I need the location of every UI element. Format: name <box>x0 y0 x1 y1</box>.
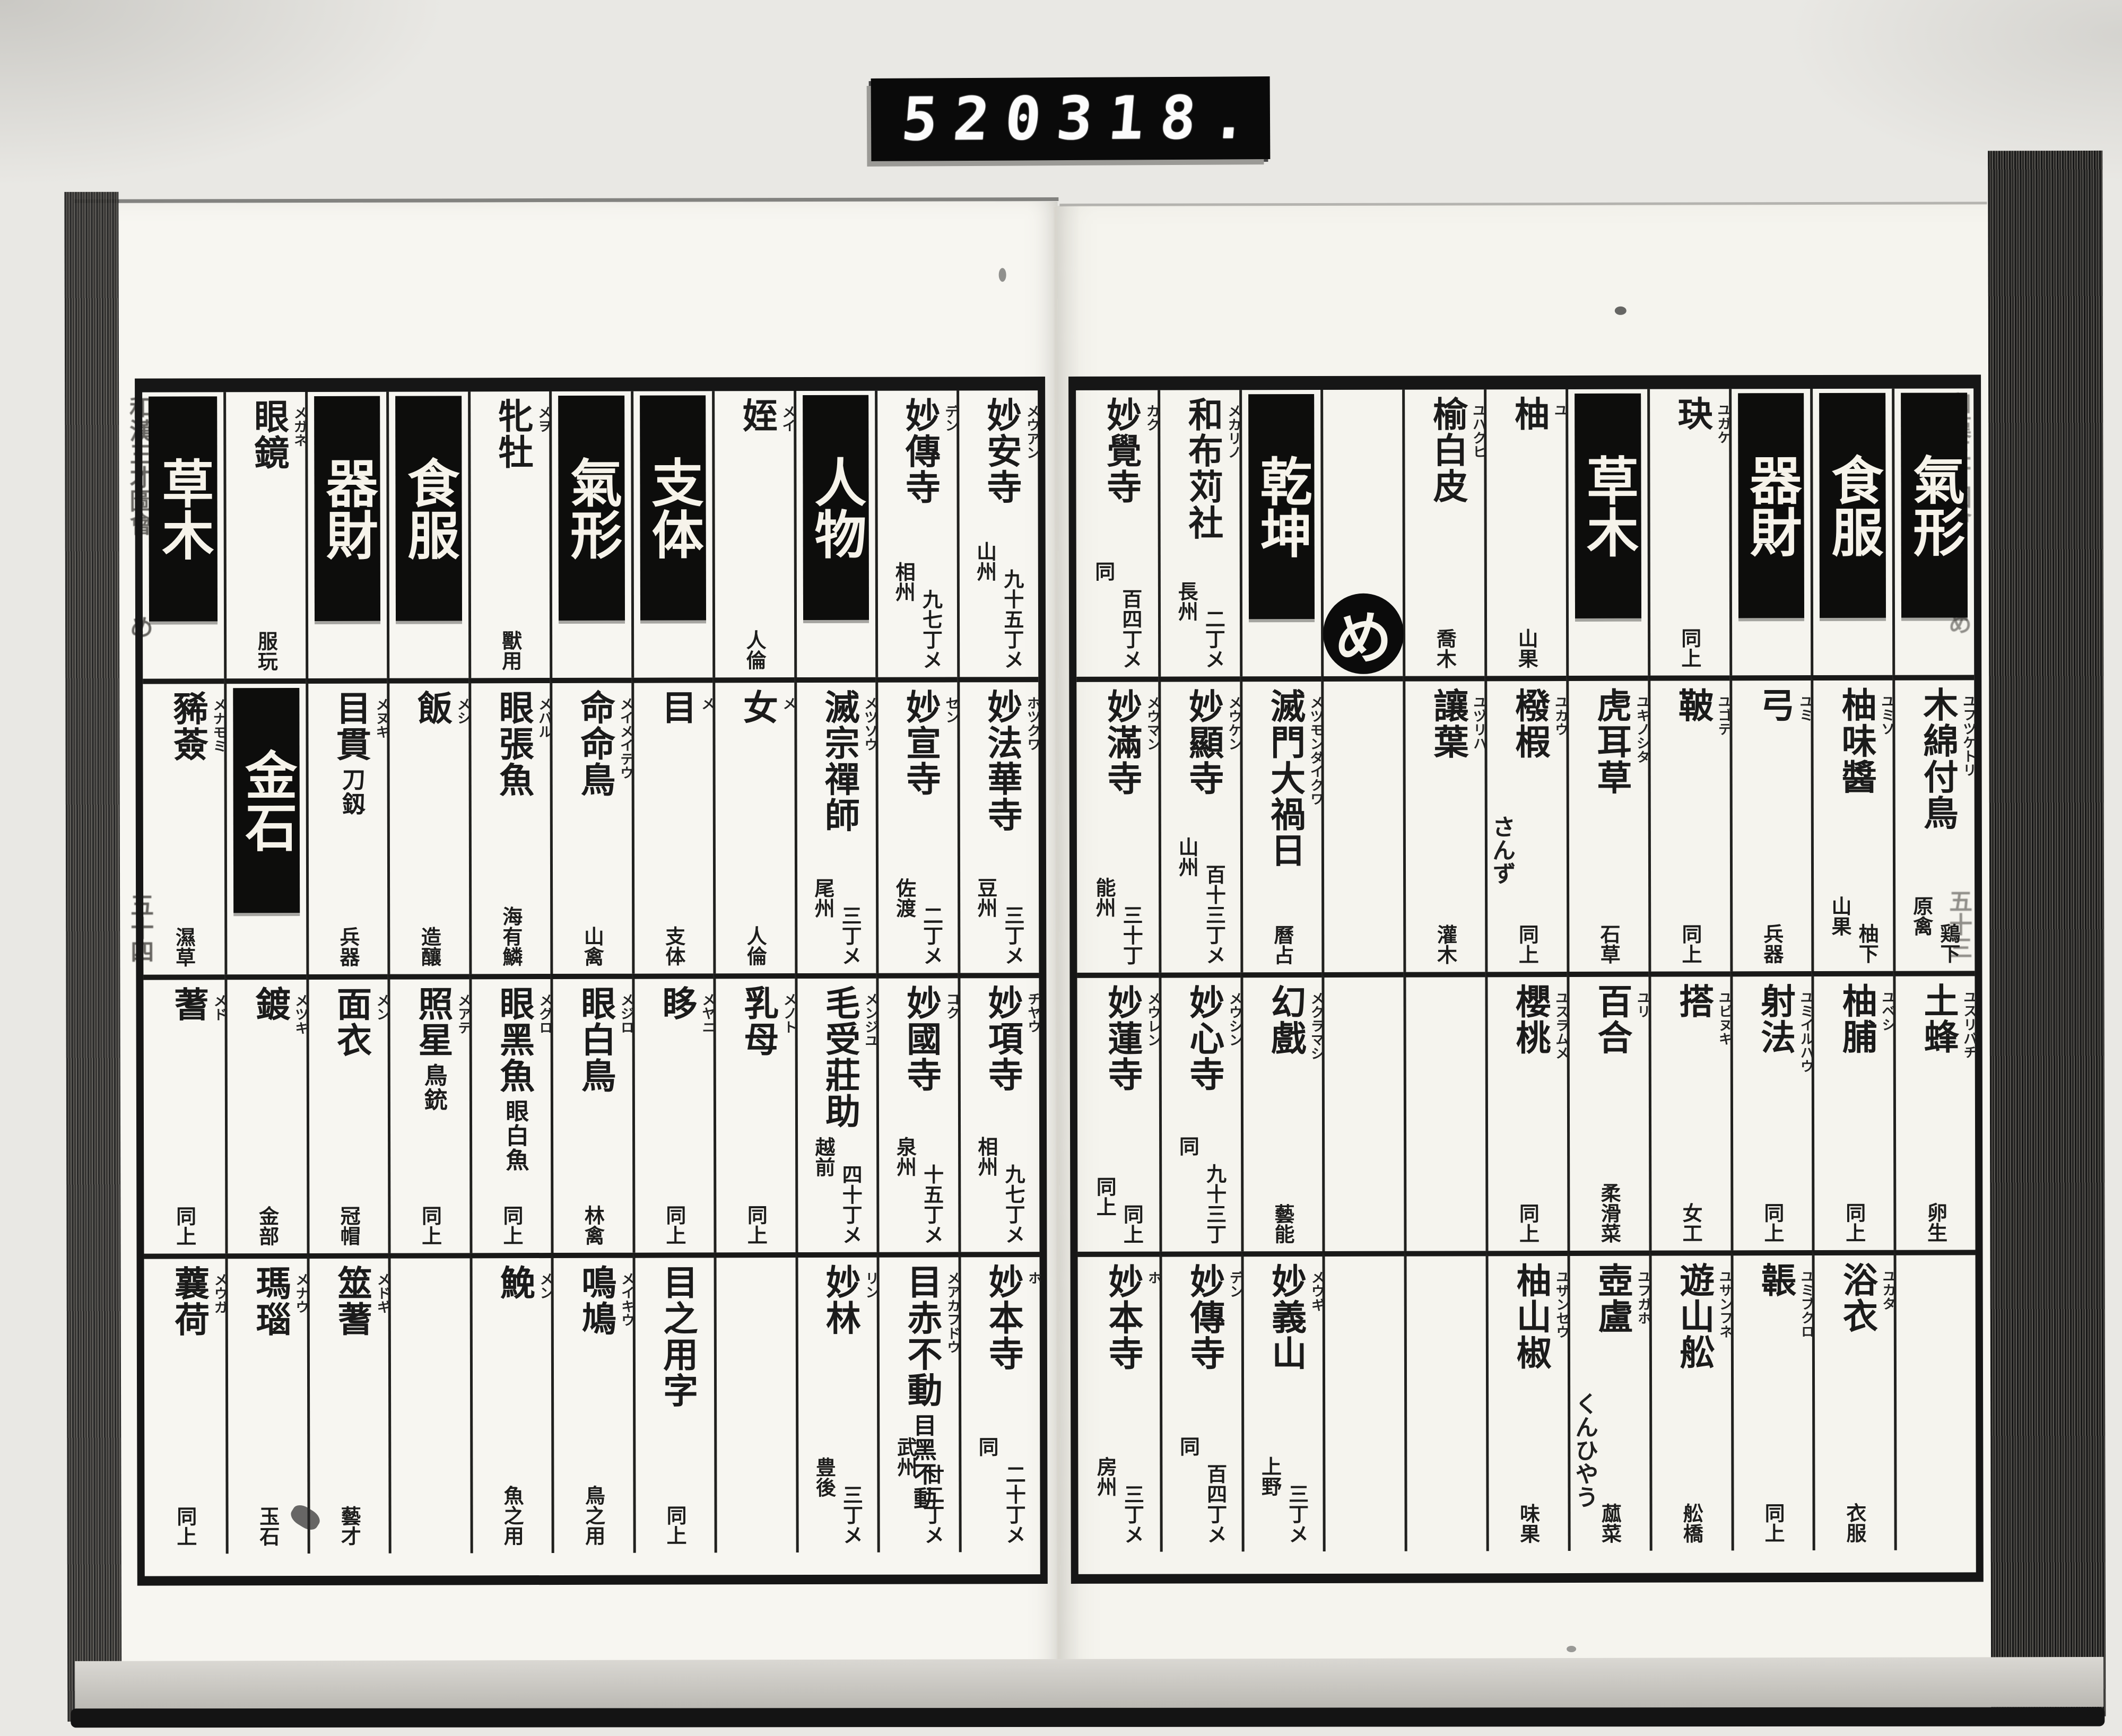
entry-text: 妙蓮寺 <box>1102 984 1142 1093</box>
category-note: 山州 <box>1176 836 1198 877</box>
entry-text: 妙本寺 <box>984 1263 1023 1372</box>
note-group: 同上 <box>145 1506 227 1546</box>
note-group: 同上 <box>472 1205 551 1245</box>
furigana: ホツクワ <box>1021 696 1039 751</box>
category-note: 同上 <box>1679 627 1701 668</box>
entry-sub-text: 眼白魚 <box>501 1099 528 1172</box>
furigana: メガネ <box>288 406 306 447</box>
note-group: 卵生 <box>1897 1202 1976 1242</box>
entry-main-text: 姪 <box>737 397 778 433</box>
note-group: 同上 <box>1488 924 1567 964</box>
category-note: 相州 <box>893 562 915 602</box>
index-cell: 妙心寺メウシン同九十三丁 <box>1159 972 1241 1251</box>
note-group: 林禽 <box>554 1205 633 1245</box>
entry-text: 鞁 <box>1673 687 1712 723</box>
category-note: 同 <box>1177 1436 1199 1456</box>
entry-main-text: 妙蓮寺 <box>1102 984 1143 1093</box>
category-header-label: 人物 <box>810 456 862 560</box>
entry-text: 妙安寺 <box>981 397 1021 505</box>
ink-speck <box>1567 1646 1576 1652</box>
category-note: 十五丁メ <box>921 1164 943 1244</box>
entry-main-text: 妙顯寺 <box>1183 688 1224 796</box>
entry-text: 櫻桃 <box>1510 983 1550 1055</box>
index-cell: 弓ユミ兵器 <box>1729 675 1812 971</box>
index-cell: 壺盧ユフガホくんひやう蓏菜 <box>1567 1251 1649 1551</box>
entry-main-text: 鳴鳩 <box>576 1264 617 1337</box>
category-note: 原禽 <box>1911 896 1933 936</box>
furigana: デン <box>1224 1270 1242 1298</box>
category-note: 冠帽 <box>338 1206 360 1246</box>
entry-main-text: 韔 <box>1755 1262 1797 1298</box>
category-header-label: 草木 <box>157 457 209 561</box>
category-header-label: 金石 <box>240 748 292 852</box>
furigana: メウギ <box>1306 1270 1324 1312</box>
entry-main-text: 壺盧 <box>1592 1262 1633 1334</box>
furigana: ホ <box>1142 1271 1160 1285</box>
category-note: 兵器 <box>1761 923 1783 964</box>
index-cell: 毛受莊助メンジユ越前四十丁メ <box>795 973 877 1252</box>
entry-text: 和布苅社 <box>1183 396 1222 540</box>
note-group: 兵器 <box>309 927 388 967</box>
entry-text: 木綿付鳥 <box>1918 686 1957 831</box>
note-group: 同上 <box>1815 1202 1894 1243</box>
entry-text: 柚脯 <box>1837 983 1876 1055</box>
index-cell: 鳴鳩メイキウ鳥之用 <box>551 1253 633 1553</box>
entry-main-text: 瑪瑙 <box>250 1265 291 1337</box>
entry-main-text: 飯 <box>412 690 453 726</box>
entry-main-text: 射法 <box>1755 983 1796 1055</box>
category-header-label: 器財 <box>321 457 373 561</box>
index-cell: 鮸メン魚之用 <box>469 1253 552 1553</box>
index-cell: 妙安寺メウアン山州九十五丁メ <box>956 390 1039 677</box>
index-cell: 妙義山メウギ上野三丁メ <box>1241 1251 1323 1551</box>
category-header: 草木 <box>149 396 218 621</box>
index-cell: 鞁ユゴテ同上 <box>1648 675 1730 971</box>
category-note: 豊後 <box>813 1457 835 1497</box>
furigana: コク <box>941 992 959 1019</box>
entry-main-text: 目貫 <box>331 690 372 762</box>
category-header-label: 氣形 <box>566 456 618 560</box>
furigana: メクラマシ <box>1305 991 1323 1060</box>
category-note: 同 <box>1093 561 1115 581</box>
furigana: リン <box>860 1271 878 1299</box>
entry-text: 女 <box>738 689 777 725</box>
category-note: 藝能 <box>1272 1203 1294 1244</box>
note-group: 石草 <box>1569 924 1648 964</box>
furigana: メヌキ <box>370 697 388 739</box>
index-cell: 眼白鳥メジロ林禽 <box>551 974 633 1253</box>
note-group: 同上 <box>1734 1503 1813 1543</box>
index-cell: 器財 <box>305 392 387 678</box>
category-header: 食服 <box>1820 393 1886 618</box>
entry-text: 牝牡 <box>493 398 533 470</box>
kana-gloss: くんひやう <box>1572 1392 1596 1508</box>
entry-main-text: 虎耳草 <box>1591 687 1632 796</box>
index-cell: 眼張魚メバル海有鱗 <box>468 678 551 974</box>
furigana: メウケン <box>1223 695 1241 751</box>
entry-main-text: 搭 <box>1673 983 1715 1019</box>
entry-text: 筮蓍 <box>332 1265 371 1337</box>
index-cell: 人物 <box>794 391 876 677</box>
index-cell: 妙宣寺セン佐渡二丁メ <box>875 677 958 973</box>
category-note: 味果 <box>1518 1503 1540 1543</box>
furigana: ユサンフネ <box>1714 1269 1732 1338</box>
entry-text: 眵 <box>657 985 697 1021</box>
category-header: 乾坤 <box>1248 394 1315 619</box>
note-group: 上野三丁メ <box>1244 1456 1323 1544</box>
category-note: 九十三丁 <box>1204 1163 1225 1244</box>
note-group: 喬木 <box>1405 628 1484 668</box>
index-cell: 鍍メツキ金部 <box>225 974 307 1253</box>
entry-main-text: 遊山舩 <box>1674 1262 1715 1370</box>
index-cell: 食服 <box>1810 389 1892 675</box>
category-note: 山州 <box>974 541 996 581</box>
category-note: 豆州 <box>975 877 997 918</box>
index-cell: 妙本寺ホ同二十丁メ <box>958 1252 1040 1552</box>
entry-main-text: 妙本寺 <box>1102 1263 1144 1372</box>
entry-main-text: 蘘荷 <box>169 1265 210 1337</box>
note-group: 同百四丁メ <box>1076 561 1158 669</box>
index-cell: 目赤不動目黑不動メアカフドウ武州廿二丁メ <box>877 1252 959 1552</box>
entry-main-text: 柚山椒 <box>1510 1262 1552 1371</box>
index-cell: 和布苅社メカリノ長州二丁メ <box>1158 390 1240 676</box>
furigana: メツキ <box>289 993 307 1035</box>
note-group: 曆占 <box>1243 924 1322 965</box>
furigana: メウレン <box>1142 992 1160 1047</box>
entry-main-text: 照星 <box>412 985 454 1058</box>
entry-text: 遊山舩 <box>1674 1262 1714 1370</box>
entry-text: 滅門大禍日 <box>1265 688 1305 868</box>
furigana: メナモミ <box>207 697 225 753</box>
category-note: 同上 <box>1680 923 1701 964</box>
entry-main-text: 鞁 <box>1673 687 1714 723</box>
furigana: ユハクヒ <box>1467 403 1485 458</box>
furigana: メド <box>208 993 226 1021</box>
category-note: 造釀 <box>419 926 440 966</box>
category-header: 金石 <box>233 688 300 913</box>
category-note: 鶏下 <box>1938 923 1960 963</box>
entry-text: 照星鳥銃 <box>413 985 452 1112</box>
category-header-label: 氣形 <box>1908 453 1960 557</box>
entry-text: 壺盧 <box>1593 1262 1632 1334</box>
furigana: メアテ <box>452 993 470 1034</box>
category-header: 食服 <box>396 396 462 621</box>
category-note: 藝才 <box>338 1506 360 1546</box>
entry-text: 鮸 <box>495 1264 534 1301</box>
entry-text: 命命鳥 <box>575 690 614 798</box>
note-group: 女工 <box>1651 1202 1730 1243</box>
furigana: メツモンダイクワ <box>1304 695 1323 806</box>
entry-text: 妙義山 <box>1266 1263 1306 1371</box>
note-group: 灌木 <box>1406 924 1485 964</box>
furigana: メジロ <box>615 993 633 1034</box>
index-cell: 木綿付鳥ユフツケトリ原禽鶏下 <box>1892 675 1975 971</box>
note-group: 同上 <box>1488 1203 1567 1243</box>
furigana: ユザンセウ <box>1551 1270 1569 1339</box>
category-note: 山果 <box>1516 628 1537 668</box>
note-group: 能州三十丁 <box>1077 877 1159 965</box>
furigana: ユミ <box>1794 694 1812 722</box>
entry-main-text: 弓 <box>1754 687 1796 723</box>
entry-main-text: 滅宗禪師 <box>819 689 860 833</box>
note-group: 同上 <box>1650 627 1729 668</box>
entry-text: 妙滿寺 <box>1102 688 1141 797</box>
note-group: 山禽 <box>553 926 632 966</box>
furigana: メイ <box>777 405 795 432</box>
index-cell: 食服 <box>386 391 468 678</box>
entry-sub-text: 鳥銃 <box>420 1063 447 1112</box>
furigana: ユ <box>1549 403 1567 417</box>
index-cell: 目之用字同上 <box>632 1252 715 1552</box>
furigana: ユスラムメ <box>1550 991 1568 1060</box>
furigana: メノト <box>778 992 796 1034</box>
entry-text: 眼黑魚眼白魚 <box>494 985 534 1172</box>
entry-text: 浴衣 <box>1838 1262 1877 1334</box>
entry-text: 蓍 <box>169 986 208 1022</box>
entry-text: 鍍 <box>250 986 289 1022</box>
index-cell: 柚脯ユベシ同上 <box>1812 971 1894 1250</box>
category-note: 山禽 <box>581 926 603 966</box>
furigana: カク <box>1141 404 1159 432</box>
category-note: 三十丁 <box>1120 905 1142 965</box>
index-cell: 照星鳥銃メアテ同上 <box>388 974 470 1253</box>
entry-text: 土蜂 <box>1919 982 1958 1054</box>
category-note: 三丁メ <box>1121 1484 1143 1545</box>
index-cell: 柚味醬ユミソ山果柚下 <box>1811 675 1893 971</box>
furigana: ユカウ <box>1549 695 1567 736</box>
category-note: 女工 <box>1680 1202 1702 1243</box>
note-group: 尾州三丁メ <box>797 878 876 966</box>
note-group: 佐渡二丁メ <box>879 877 958 965</box>
note-group: 武州廿二丁メ <box>880 1436 959 1545</box>
index-cell: 氣形 <box>1892 388 1974 675</box>
index-cell: 橃椵ユカウさんず同上 <box>1484 676 1567 972</box>
index-cell: 讓葉ユヅリハ灌木 <box>1403 676 1485 972</box>
category-note: 喬木 <box>1434 628 1456 668</box>
category-note: 相州 <box>976 1136 997 1176</box>
index-cell: 妙項寺チヤウ相州九七丁メ <box>958 973 1040 1252</box>
empty-cell <box>1323 1251 1405 1551</box>
entry-main-text: 土蜂 <box>1918 982 1959 1054</box>
note-group: 同上 <box>391 1205 470 1245</box>
empty-cell <box>388 1253 471 1553</box>
index-cell: 浴衣ユカタ衣服 <box>1812 1250 1894 1550</box>
category-header: 氣形 <box>1901 392 1968 617</box>
category-note: 三丁メ <box>1002 905 1024 965</box>
index-cell: 豨薟メナモミ濕草 <box>143 678 225 974</box>
entry-main-text: 木綿付鳥 <box>1917 686 1959 831</box>
index-cell: 射法ユミイルハウ同上 <box>1730 971 1812 1250</box>
entry-text: 目 <box>657 689 696 725</box>
category-note: 海有鱗 <box>500 906 522 966</box>
index-cell: 滅宗禪師メツソウ尾州三丁メ <box>794 677 876 973</box>
entry-main-text: 柚脯 <box>1837 983 1878 1055</box>
scanned-book-spread: 和漢三才圖會 め 五十四 和漢三才圖會 め 五十三 氣形木綿付鳥ユフツケトリ原禽… <box>0 0 2122 1736</box>
furigana: メヲ <box>532 405 550 433</box>
note-group: 同上 <box>1651 923 1730 964</box>
index-cell: 氣形 <box>549 391 631 678</box>
empty-cell <box>1404 1251 1486 1551</box>
furigana: ユミイルハウ <box>1795 990 1813 1073</box>
note-group: 相州九七丁メ <box>878 561 957 669</box>
kana-gloss: さんず <box>1490 815 1513 885</box>
index-cell: 韔ユミブクロ同上 <box>1730 1250 1813 1550</box>
entry-main-text: 滅門大禍日 <box>1265 688 1307 868</box>
category-note: 石草 <box>1598 924 1620 964</box>
entry-text: 妙心寺 <box>1184 984 1223 1092</box>
note-group: 蓏菜 <box>1570 1503 1649 1543</box>
empty-cell <box>714 1252 796 1552</box>
entry-text: 柚 <box>1509 396 1549 432</box>
category-note: 佐渡 <box>893 878 915 918</box>
entry-main-text: 眼黑魚 <box>494 985 535 1094</box>
category-note: 同上 <box>1843 1202 1865 1243</box>
entry-text: 妙林 <box>821 1264 860 1336</box>
entry-text: 瑪瑙 <box>251 1265 290 1337</box>
category-note: 同上 <box>501 1205 523 1245</box>
note-group: 支体 <box>634 926 714 966</box>
index-cell: 女メ人倫 <box>712 677 795 973</box>
category-header-label: 食服 <box>1827 453 1879 557</box>
category-note: 二丁メ <box>1203 608 1224 669</box>
furigana: ユカタ <box>1877 1269 1895 1311</box>
index-cell: 眵メヤニ同上 <box>632 973 714 1252</box>
index-cell: 牝牡メヲ獸用 <box>468 391 550 678</box>
empty-cell <box>1404 972 1486 1251</box>
index-cell: 遊山舩ユサンフネ舩橋 <box>1649 1250 1731 1550</box>
entry-text: 搭 <box>1674 983 1713 1019</box>
entry-text: 妙傳寺 <box>900 397 940 505</box>
entry-main-text: 柚 <box>1509 396 1550 432</box>
furigana: メバル <box>533 697 551 738</box>
index-cell: 筮蓍メドギ藝才 <box>307 1253 389 1554</box>
furigana: メンジユ <box>859 992 877 1048</box>
furigana: メシ <box>451 697 469 725</box>
category-note: 濕草 <box>173 927 195 967</box>
entry-text: 柚味醬 <box>1837 687 1876 795</box>
furigana: メ <box>696 696 714 710</box>
category-note: 同上 <box>175 1506 196 1546</box>
entry-text: 妙傳寺 <box>1185 1263 1224 1371</box>
entry-text: 妙宣寺 <box>901 688 940 797</box>
note-group: 藝才 <box>310 1506 389 1546</box>
furigana: ユフガホ <box>1632 1270 1650 1325</box>
furigana: ユゴテ <box>1712 694 1730 736</box>
entry-main-text: 乳母 <box>738 985 779 1057</box>
furigana: メウマン <box>1141 696 1159 751</box>
entry-text: 眼鏡 <box>249 398 288 470</box>
note-group: 同上 <box>1733 1202 1812 1243</box>
entry-text: 滅宗禪師 <box>819 689 858 833</box>
entry-main-text: 命命鳥 <box>575 690 616 798</box>
category-note: 曆占 <box>1272 924 1293 965</box>
entry-main-text: 眼鏡 <box>248 398 290 470</box>
category-note: 三丁メ <box>839 905 861 966</box>
category-note: 同上 <box>745 1205 767 1245</box>
furigana: メ <box>777 696 795 710</box>
category-note: 獸用 <box>500 630 521 670</box>
entry-main-text: 浴衣 <box>1837 1262 1879 1334</box>
furigana: ユミソ <box>1876 694 1894 736</box>
furigana: メイメイテウ <box>614 697 632 780</box>
note-group: 衣服 <box>1815 1503 1894 1543</box>
entry-main-text: 櫻桃 <box>1510 983 1551 1055</box>
index-cell: 妙覺寺カク同百四丁メ <box>1076 390 1158 677</box>
index-cell: 櫻桃ユスラムメ同上 <box>1485 972 1568 1251</box>
index-cell: 妙滿寺メウマン能州三十丁 <box>1076 677 1159 973</box>
entry-text: 蘘荷 <box>169 1265 208 1337</box>
category-note: 九十五丁メ <box>1002 569 1023 669</box>
category-note: 灌木 <box>1434 924 1456 964</box>
entry-main-text: 榆白皮 <box>1427 396 1468 504</box>
entry-text: 幻戲 <box>1266 984 1305 1056</box>
furigana: メン <box>534 1272 552 1299</box>
index-cell: 幻戲メクラマシ藝能 <box>1240 972 1323 1251</box>
furigana: ユキノシタ <box>1631 695 1649 764</box>
entry-text: 玦 <box>1673 395 1712 431</box>
category-note: 支体 <box>663 926 685 966</box>
note-group: 豊後三丁メ <box>798 1457 877 1545</box>
right-page-index-table: 氣形木綿付鳥ユフツケトリ原禽鶏下土蜂ユスリバチ卵生食服柚味醬ユミソ山果柚下柚脯ユ… <box>1068 374 1984 1584</box>
category-note: 同上 <box>1762 1503 1784 1543</box>
entry-main-text: 妙傳寺 <box>1184 1263 1225 1371</box>
entry-text: 妙本寺 <box>1103 1263 1142 1372</box>
category-note: 蓏菜 <box>1599 1503 1621 1543</box>
index-cell: 柚ユ山果 <box>1484 389 1566 676</box>
entry-text: 妙覺寺 <box>1101 397 1141 505</box>
entry-main-text: 妙滿寺 <box>1101 688 1143 797</box>
category-note: 柚下 <box>1856 923 1878 964</box>
note-group: 豆州三丁メ <box>960 877 1039 965</box>
entry-text: 眼白鳥 <box>576 985 615 1094</box>
category-note: 同上 <box>1762 1202 1784 1243</box>
entry-main-text: 蓍 <box>168 986 210 1022</box>
note-group: 人倫 <box>715 630 794 670</box>
index-cell: 柚山椒ユザンセウ味果 <box>1486 1251 1568 1551</box>
note-group: 柔滑菜 <box>1570 1183 1649 1243</box>
index-cell: 面衣メン冠帽 <box>306 974 388 1253</box>
category-note: 百四丁メ <box>1205 1463 1227 1544</box>
note-group: 同九十三丁 <box>1162 1136 1241 1244</box>
category-note: 鳥之用 <box>582 1485 604 1546</box>
index-cell: 乾坤 <box>1239 390 1321 676</box>
category-note: 魚之用 <box>501 1485 523 1546</box>
furigana: ユビヌキ <box>1713 990 1731 1045</box>
category-header: 器財 <box>314 396 380 621</box>
note-group: 相州九七丁メ <box>961 1136 1040 1244</box>
entry-main-text: 玦 <box>1672 395 1714 431</box>
note-group: 藝能 <box>1243 1203 1323 1244</box>
category-note: 泉州 <box>894 1137 916 1177</box>
category-header: 氣形 <box>558 396 624 621</box>
index-cell: 蘘荷メウガ同上 <box>144 1253 227 1554</box>
note-group: 同百四丁メ <box>1162 1436 1241 1544</box>
category-note: 房州 <box>1094 1456 1116 1497</box>
entry-main-text: 女 <box>737 689 779 725</box>
furigana: メウアン <box>1021 404 1039 459</box>
note-group: 濕草 <box>143 927 225 967</box>
furigana: セン <box>940 696 958 723</box>
section-marker-me: め <box>1323 594 1404 674</box>
category-note: 武州 <box>895 1437 917 1477</box>
furigana: メナウ <box>290 1272 308 1314</box>
index-cell: 眼黑魚眼白魚メグロ同上 <box>469 974 551 1253</box>
furigana: ホ <box>1023 1271 1041 1285</box>
furigana: メウガ <box>208 1272 227 1314</box>
index-cell: 妙國寺コク泉州十五丁メ <box>876 973 959 1252</box>
entry-text: 讓葉 <box>1428 687 1467 760</box>
book-right-page-edges <box>1988 151 2106 1716</box>
